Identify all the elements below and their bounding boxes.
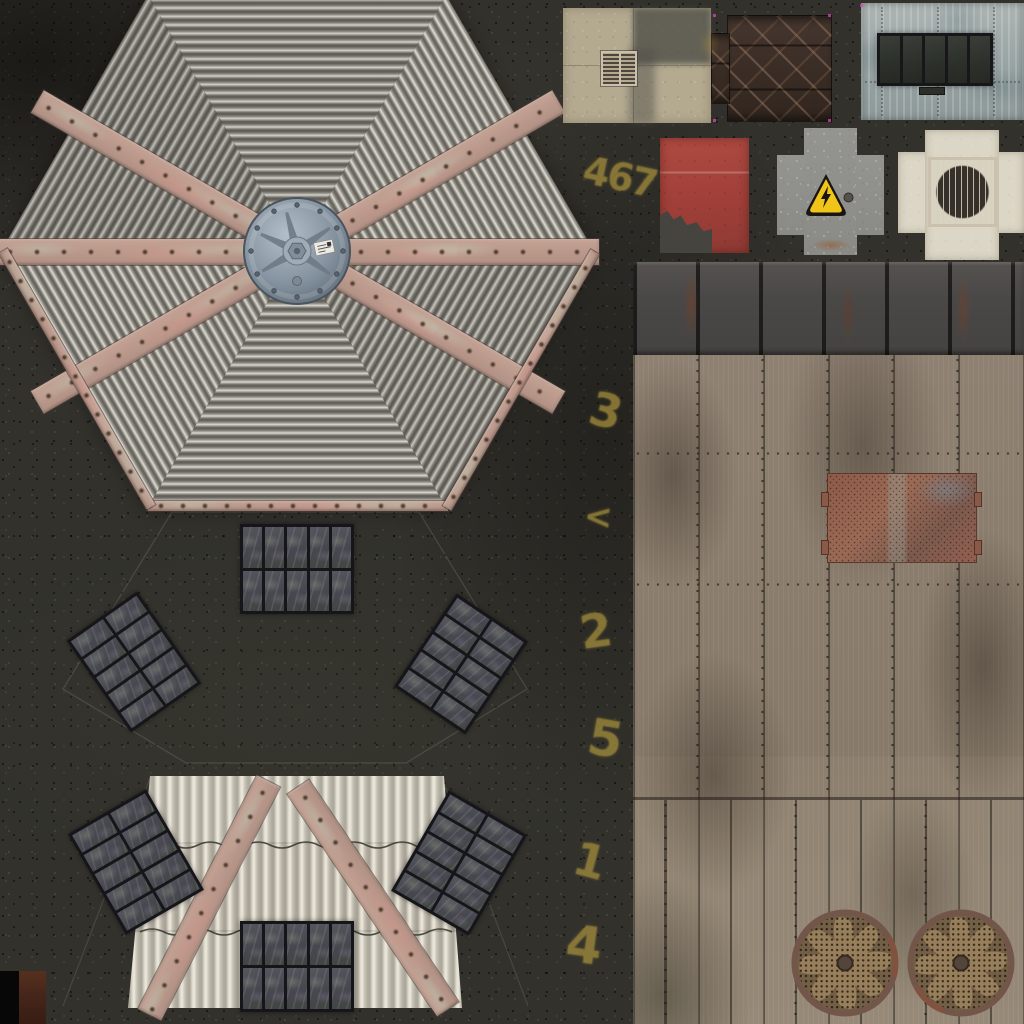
atlas-marker-dot [828, 14, 831, 17]
tile-hazard-column [804, 128, 857, 255]
perforated-mesh-panel [827, 473, 977, 563]
window-pane [880, 36, 900, 83]
window-pane [948, 36, 968, 83]
spray-mark-4: 4 [563, 918, 606, 975]
tile-hazard-tab-left [777, 155, 805, 235]
window-pane [970, 36, 990, 83]
solar-cell [265, 571, 284, 612]
rivet-column [993, 7, 995, 116]
solar-cell [243, 968, 262, 1009]
solar-cell [310, 571, 329, 612]
spray-mark-chevron: < [583, 499, 614, 535]
paint-chip-patch [660, 205, 712, 253]
rivet-column [891, 355, 894, 797]
solar-cell [287, 924, 306, 965]
atlas-marker-dot [828, 119, 831, 122]
spray-smudge [694, 22, 724, 66]
rivet-row [633, 583, 1024, 586]
rivet-column [794, 800, 797, 1024]
round-fan-vent-tile [928, 157, 997, 227]
rivet-column [956, 355, 959, 797]
roof-edge-trim-bottom [147, 500, 449, 512]
mesh-tab [974, 492, 982, 507]
rivet-column [696, 355, 699, 797]
tile-red-metal [660, 138, 749, 253]
rivet-column [924, 800, 927, 1024]
corner-swatch-rust [19, 971, 46, 1024]
window-pane [903, 36, 923, 83]
atlas-marker-dot [860, 4, 863, 7]
tile-beige-concrete [563, 8, 711, 123]
solar-cell [332, 571, 351, 612]
wood-plank-wall [633, 355, 1024, 1024]
mesh-tab [974, 540, 982, 555]
seam-horizontal [563, 65, 711, 66]
solar-array-roof [240, 921, 354, 1012]
tile-hazard-tab-right [856, 155, 884, 235]
tile-diamond-plate [727, 15, 832, 122]
rivet-column [664, 800, 667, 1024]
solar-cell [332, 924, 351, 965]
rivet-row [633, 452, 1024, 455]
rust-streak [810, 238, 852, 252]
corner-swatch-black [0, 971, 19, 1024]
solar-cell [243, 571, 262, 612]
solar-array-center [240, 524, 354, 614]
rivet-column [761, 355, 764, 797]
solar-cell [243, 924, 262, 965]
atlas-marker-dot [713, 14, 716, 17]
dark-metal-strip [633, 262, 1024, 355]
solar-cell [243, 527, 262, 568]
solar-cell [310, 968, 329, 1009]
solar-cell [265, 968, 284, 1009]
solar-cell [287, 527, 306, 568]
solar-cell [265, 924, 284, 965]
solar-cell [310, 527, 329, 568]
atlas-marker-dot [713, 119, 716, 122]
solar-cell [332, 527, 351, 568]
solar-cell [287, 571, 306, 612]
solar-cell [332, 968, 351, 1009]
plank-lower-section [633, 800, 1024, 1024]
rivet-column [826, 355, 829, 797]
texture-atlas-canvas: 467 3 < 2 5 1 4 [0, 0, 1024, 1024]
latch-plate [919, 87, 945, 95]
solar-cell [287, 968, 306, 1009]
window-strip [877, 33, 993, 86]
tile-blue-metal-panel [861, 3, 1024, 120]
mesh-tab [821, 540, 829, 555]
solar-cell [310, 924, 329, 965]
louver-vent-grille [601, 51, 637, 86]
solar-cell [265, 527, 284, 568]
window-pane [925, 36, 945, 83]
mesh-tab [821, 492, 829, 507]
spray-mark-2: 2 [577, 606, 615, 656]
